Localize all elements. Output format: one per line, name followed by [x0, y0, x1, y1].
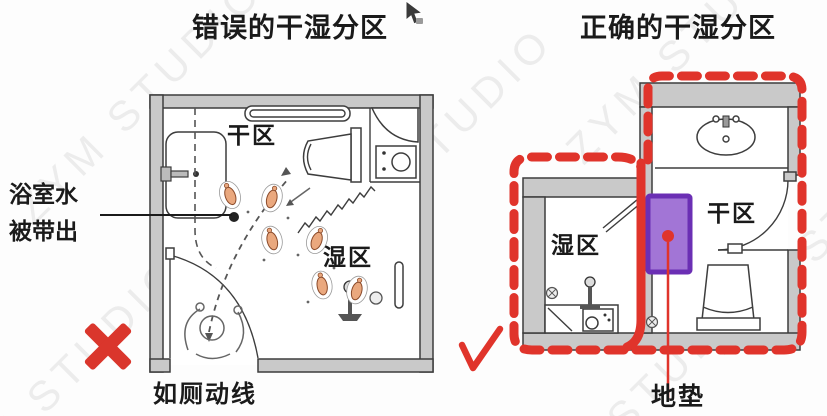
water-note-line1: 浴室水	[9, 176, 78, 213]
route-label: 如厕动线	[153, 374, 257, 409]
towel-bar	[395, 262, 403, 308]
red-cross-icon	[83, 322, 133, 372]
mat-label: 地垫	[640, 377, 716, 413]
slide-canvas: ZYM STUDIO ZYM STUDIO ZYM STUDIO ZYM STU…	[0, 0, 827, 416]
water-note-pointer-line	[100, 214, 232, 216]
left-dry-zone-label: 干区	[227, 116, 277, 150]
left-floorplan-drawing	[148, 90, 438, 375]
left-sink	[161, 132, 226, 218]
left-title: 错误的干湿分区	[150, 6, 430, 45]
right-wet-zone-label: 湿区	[551, 226, 601, 260]
water-note: 浴室水 被带出	[9, 176, 78, 250]
wet-room-counter	[545, 305, 618, 333]
right-title: 正确的干湿分区	[538, 6, 818, 45]
right-dry-zone-label: 干区	[707, 194, 757, 228]
right-floorplan-drawing	[500, 60, 827, 416]
left-wet-zone-label: 湿区	[323, 238, 373, 272]
water-note-line2: 被带出	[9, 213, 78, 250]
check-mark-icon	[455, 322, 507, 376]
